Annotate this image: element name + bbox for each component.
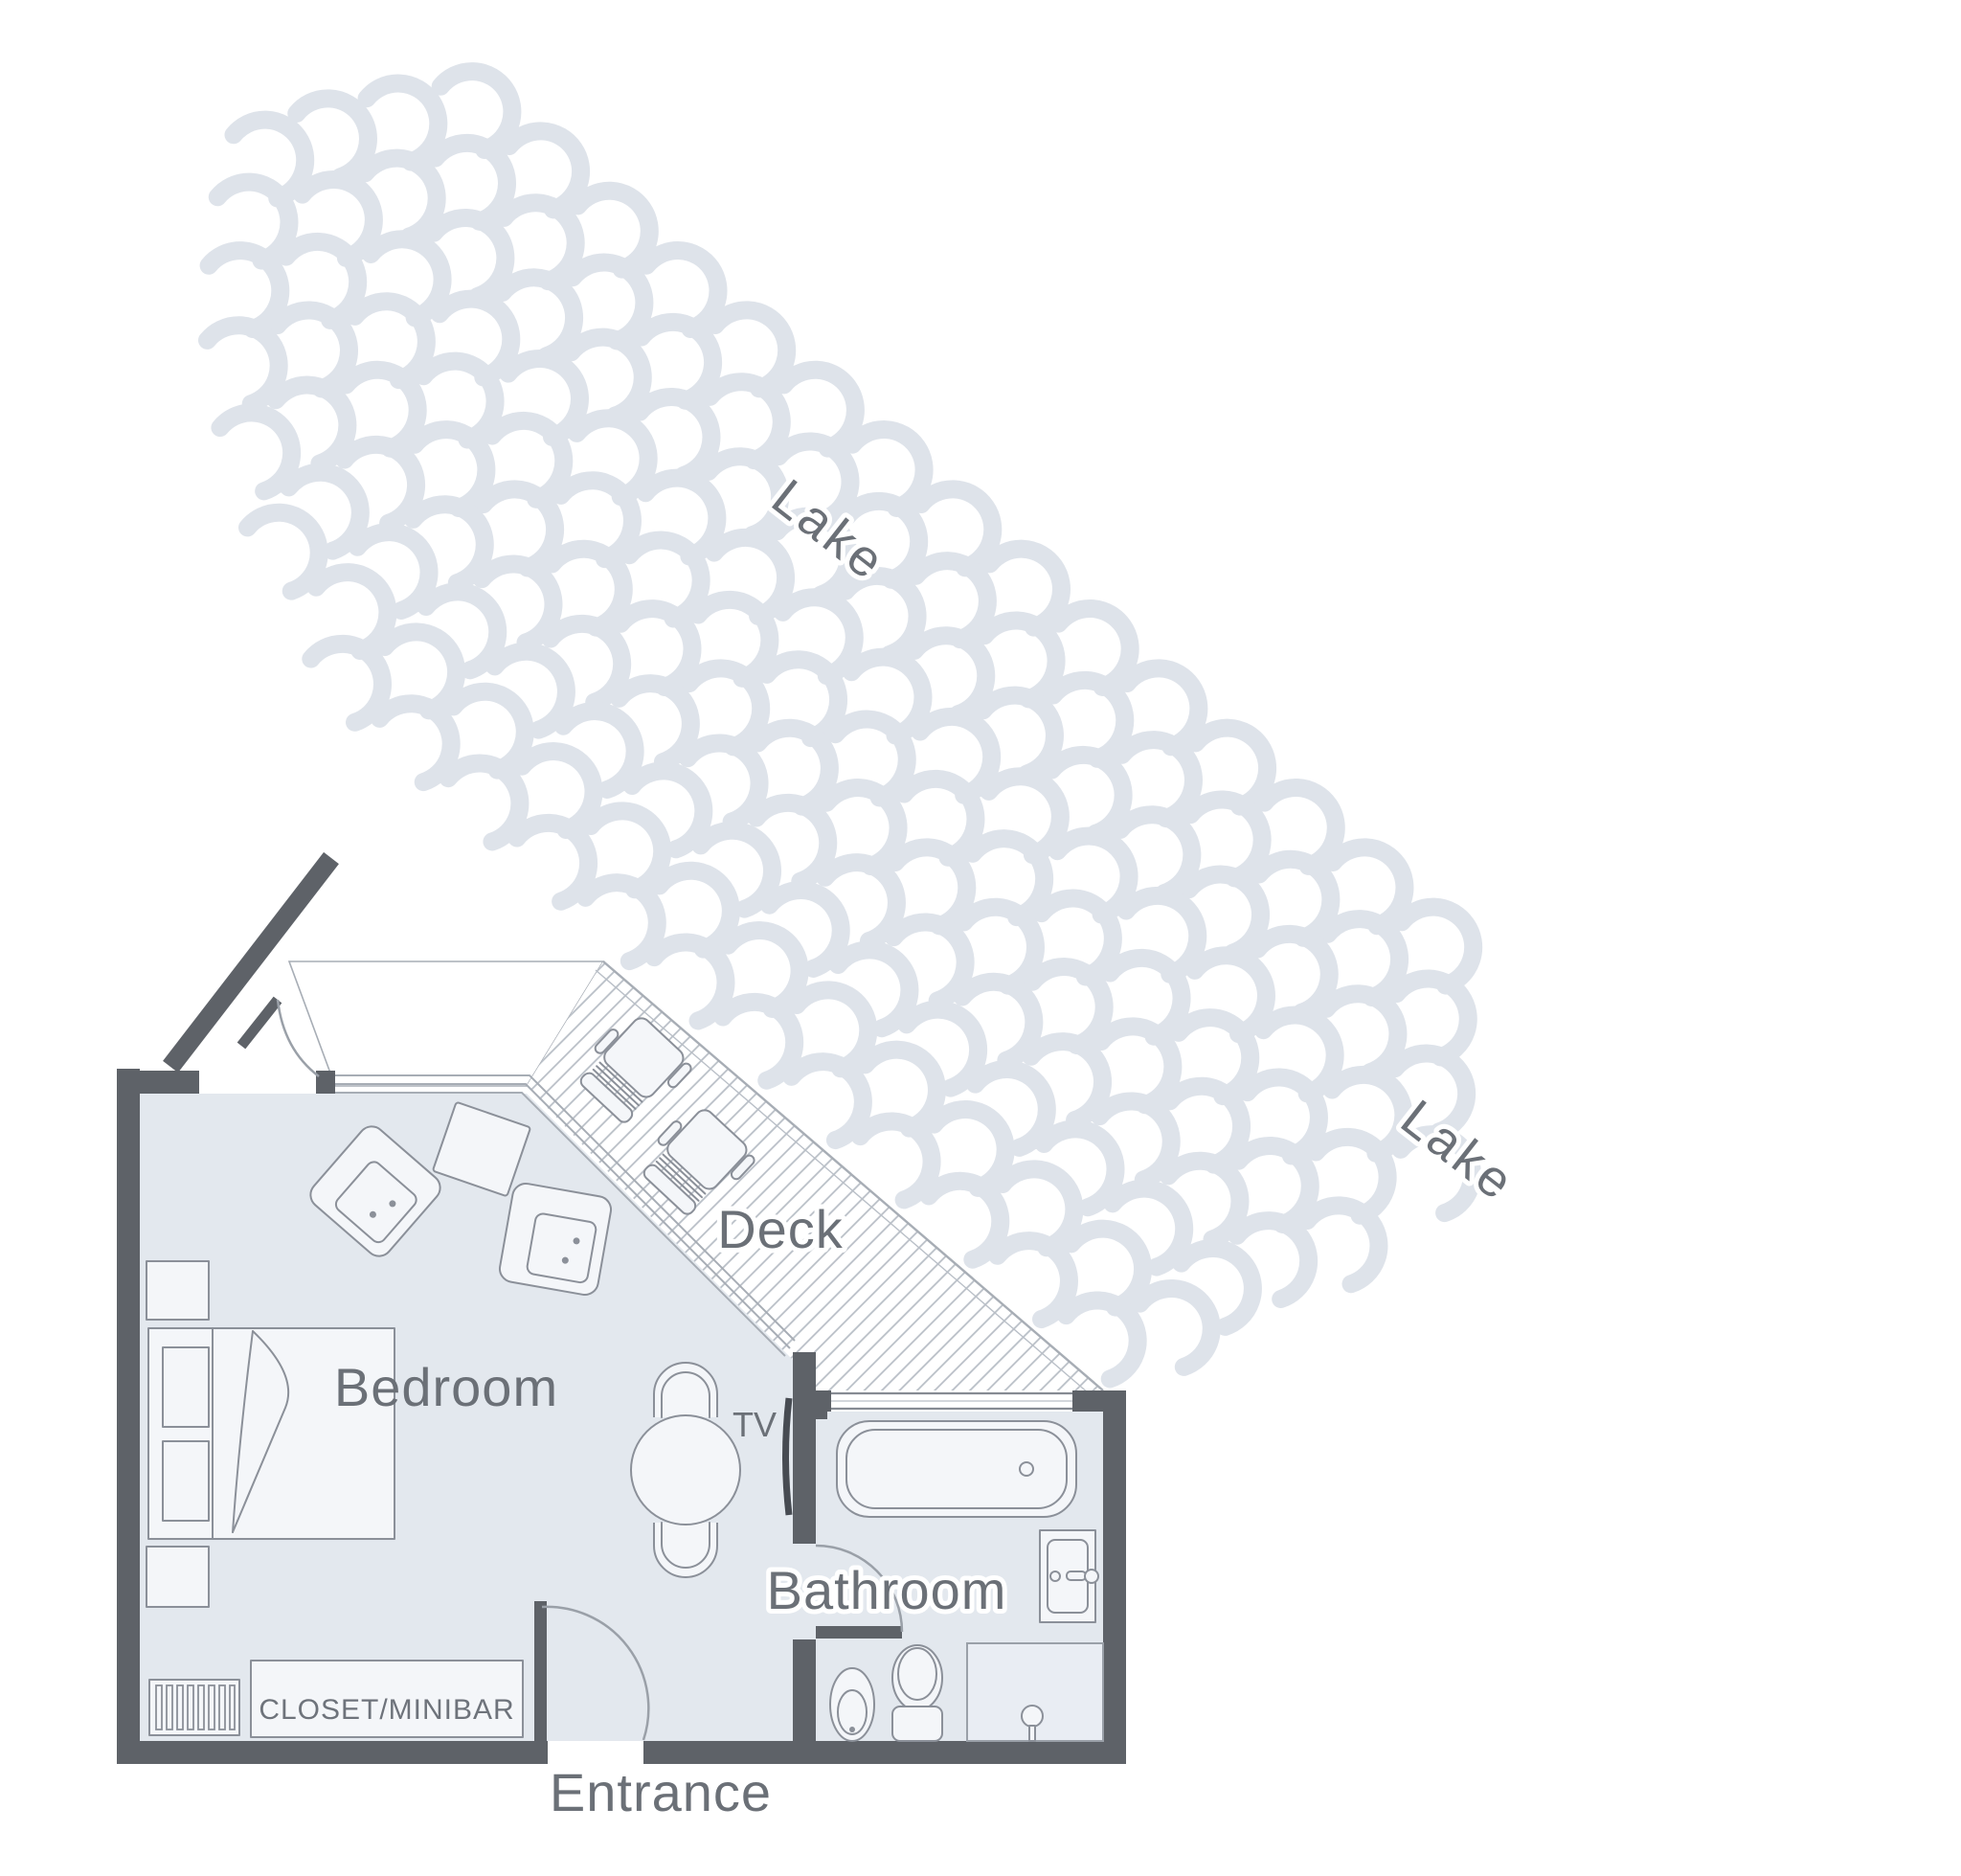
wall-divider-lower [793,1639,816,1741]
entrance-label: Entrance [550,1762,772,1822]
floor-plan-page: Lake Lake [0,0,1961,1876]
nightstand-lower [147,1547,209,1607]
toilet [892,1645,942,1741]
shower [967,1643,1103,1741]
wall-left [117,1069,140,1764]
wall-top-left-segment [117,1071,199,1094]
wall-bathroom-top-left-cap [793,1390,831,1412]
tv-screen [786,1398,790,1515]
wall-bottom-right [643,1741,1126,1764]
entrance-door-leaf [534,1601,547,1741]
bathroom-label: Bathroom [767,1560,1007,1620]
tv-label: TV [733,1405,777,1444]
headboard-panel-bottom [163,1441,209,1521]
bathtub [837,1421,1076,1517]
table-chair-top [654,1363,717,1417]
bedroom-label: Bedroom [334,1357,558,1417]
closet-minibar: CLOSET/MINIBAR [251,1661,523,1737]
wall-window-stub [316,1071,335,1094]
armchair-2 [498,1182,613,1297]
radiator [149,1680,239,1735]
bidet [830,1668,874,1741]
table-chair-bottom [654,1523,717,1577]
bathroom-door-leaf [816,1626,902,1639]
headboard-panel-top [163,1347,209,1427]
shower-head [1022,1706,1043,1727]
round-table [631,1415,740,1525]
deck-label: Deck [717,1199,844,1259]
deck-door-leaf [241,1000,278,1046]
wall-bottom-left [117,1741,548,1764]
closet-minibar-label: CLOSET/MINIBAR [259,1694,514,1726]
sink [1040,1530,1098,1622]
wall-divider-upper [793,1352,816,1544]
nightstand-upper [147,1261,209,1320]
floor-plan-canvas: Lake Lake [0,0,1961,1876]
wall-right [1103,1390,1126,1764]
